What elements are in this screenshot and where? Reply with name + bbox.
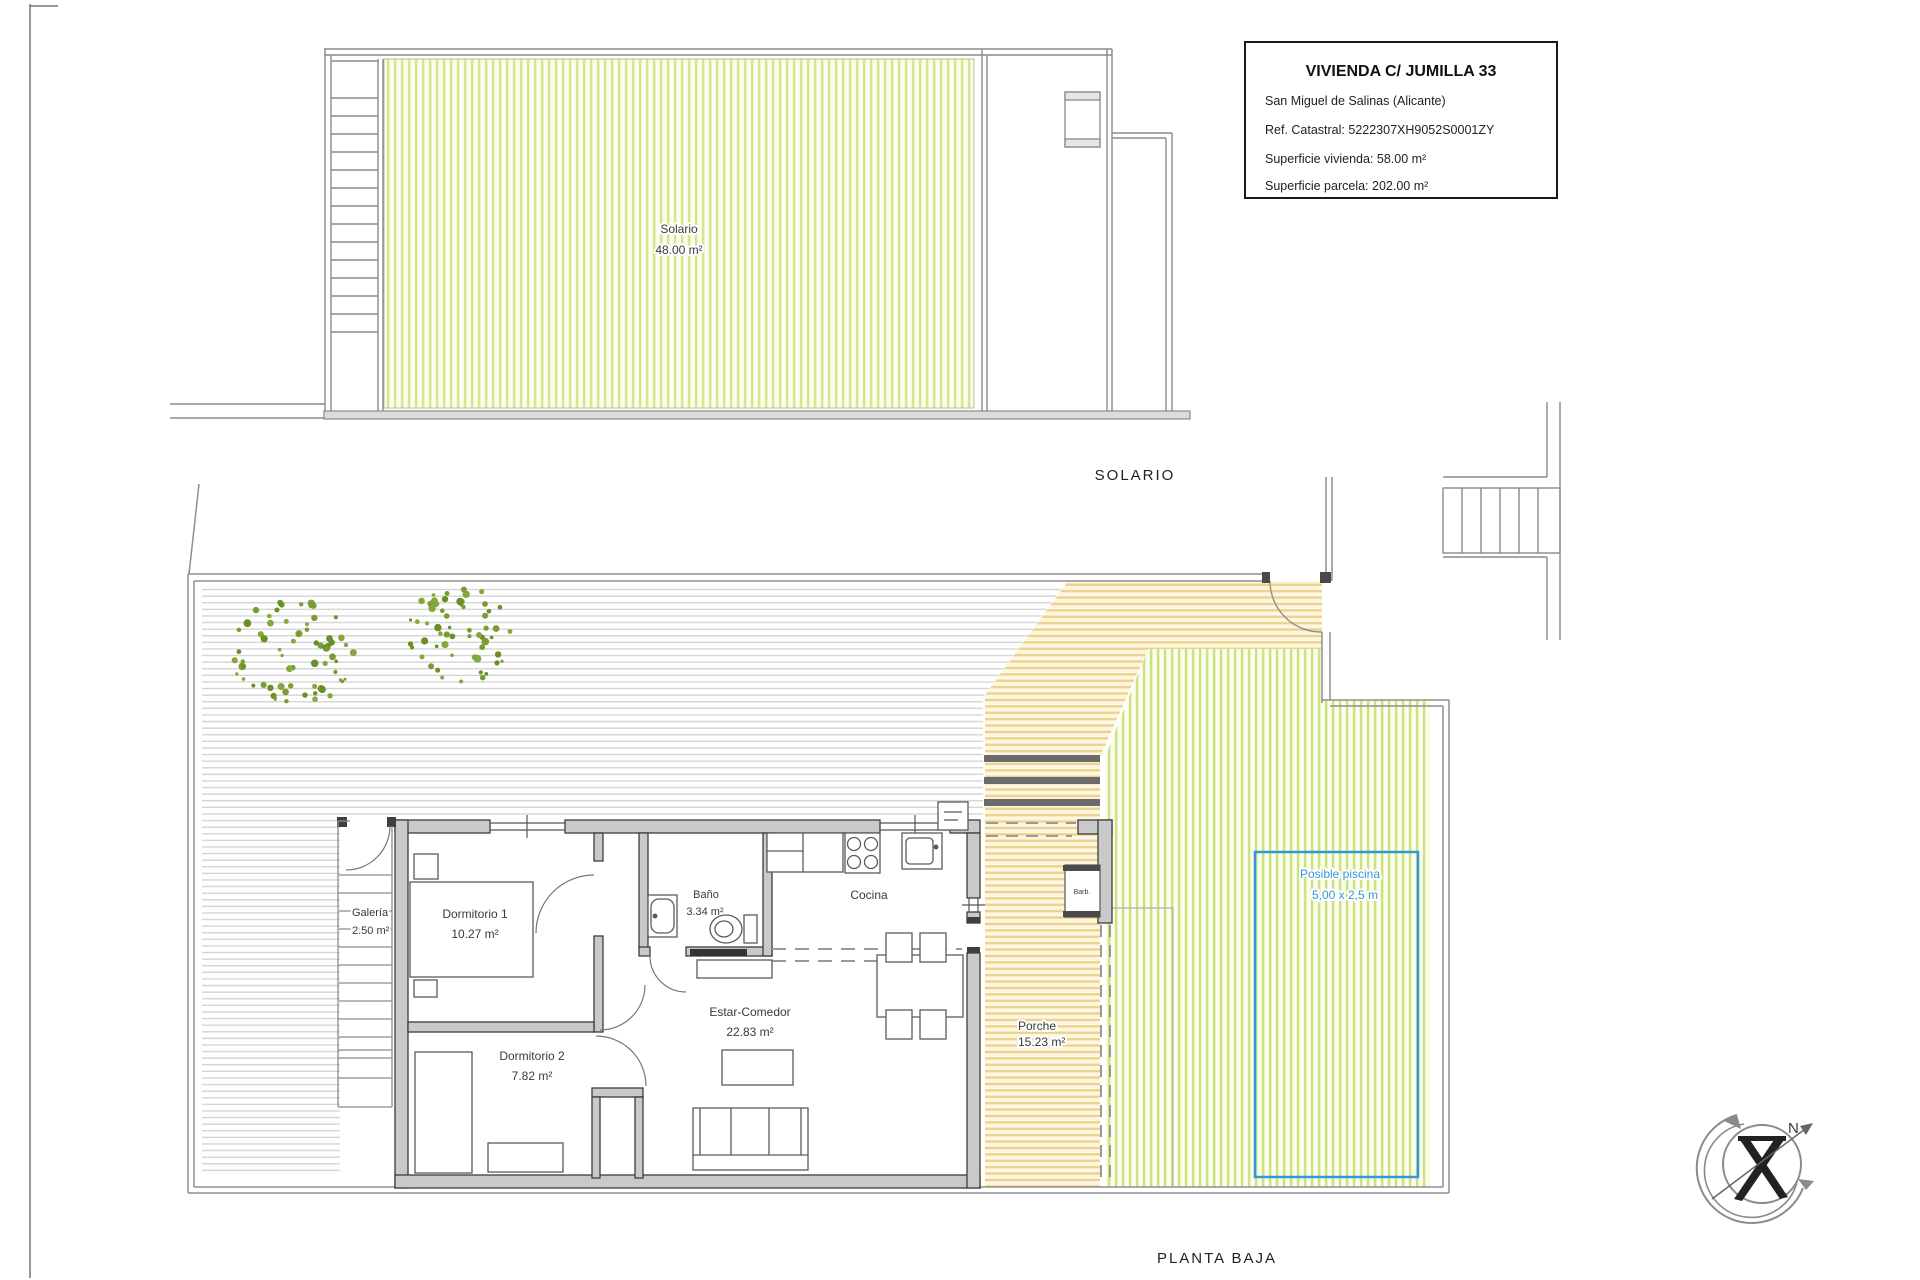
room-label-dormitorio1: Dormitorio 1 [442,907,508,921]
lawn-hatch [1105,649,1430,1187]
boiler-box [938,802,968,830]
title-block-ref-catastral: Ref. Catastral: 5222307XH9052S0001ZY [1265,123,1495,137]
patio-paving-hatch [202,588,1062,1172]
room-area-bano: 3.34 m² [686,906,724,918]
bed-dorm2 [415,1052,472,1173]
room-label-cocina: Cocina [850,888,888,902]
sheet-border [30,4,58,1278]
room-area-dormitorio1: 10.27 m² [451,927,498,941]
room-label-bano: Baño [693,889,719,901]
title-block-superficie-vivienda: Superficie vivienda: 58.00 m² [1265,152,1426,166]
furniture [410,802,968,1173]
room-label-galeria: Galería [352,907,389,919]
solario-room-label: Solario [660,222,698,236]
room-label-estar: Estar-Comedor [709,1005,790,1019]
galeria [338,821,392,1107]
title-block-superficie-parcela: Superficie parcela: 202.00 m² [1265,179,1428,193]
barbecue-label: Barb. [1074,889,1091,896]
bathtub [648,895,677,937]
pool-label-line2: 5,00 x 2,5 m [1312,888,1378,902]
room-area-galeria: 2.50 m² [352,925,390,937]
solario-ground-band [324,411,1190,419]
solario-plan: Solario 48.00 m² SOLARIO [170,49,1190,484]
floor-plan-canvas: Solario 48.00 m² SOLARIO [0,0,1920,1280]
drawing-sheet: Solario 48.00 m² SOLARIO [0,0,1920,1280]
room-label-dormitorio2: Dormitorio 2 [499,1049,565,1063]
room-area-porche: 15.23 m² [1018,1035,1065,1049]
toilet [710,915,757,943]
solario-room-area: 48.00 m² [655,243,702,257]
sofa [693,1108,808,1170]
compass-rose: N [1697,1115,1814,1223]
north-arrow-icon [1800,1123,1813,1135]
external-stair [1443,402,1560,640]
room-label-porche: Porche [1018,1019,1056,1033]
title-block-title: VIVIENDA C/ JUMILLA 33 [1306,63,1497,80]
dining-table [877,955,963,1017]
room-area-dormitorio2: 7.82 m² [512,1069,553,1083]
planta-baja-section-label: PLANTA BAJA [1157,1250,1277,1267]
solario-section-label: SOLARIO [1095,467,1176,484]
compass-north-label: N [1788,1120,1799,1137]
roof-hatch-box [1065,92,1100,147]
planta-baja-plan: Barb. [188,402,1560,1267]
title-block: VIVIENDA C/ JUMILLA 33 San Miguel de Sal… [1245,42,1557,198]
pool-label-line1: Posible piscina [1300,867,1380,881]
room-area-estar: 22.83 m² [726,1025,773,1039]
title-block-location: San Miguel de Salinas (Alicante) [1265,94,1446,108]
